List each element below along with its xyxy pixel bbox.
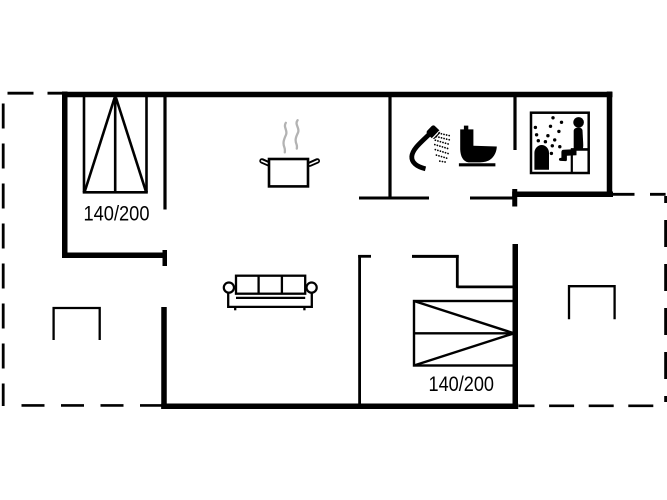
svg-text:140/200: 140/200 xyxy=(429,373,495,396)
svg-text:140/200: 140/200 xyxy=(84,202,150,225)
